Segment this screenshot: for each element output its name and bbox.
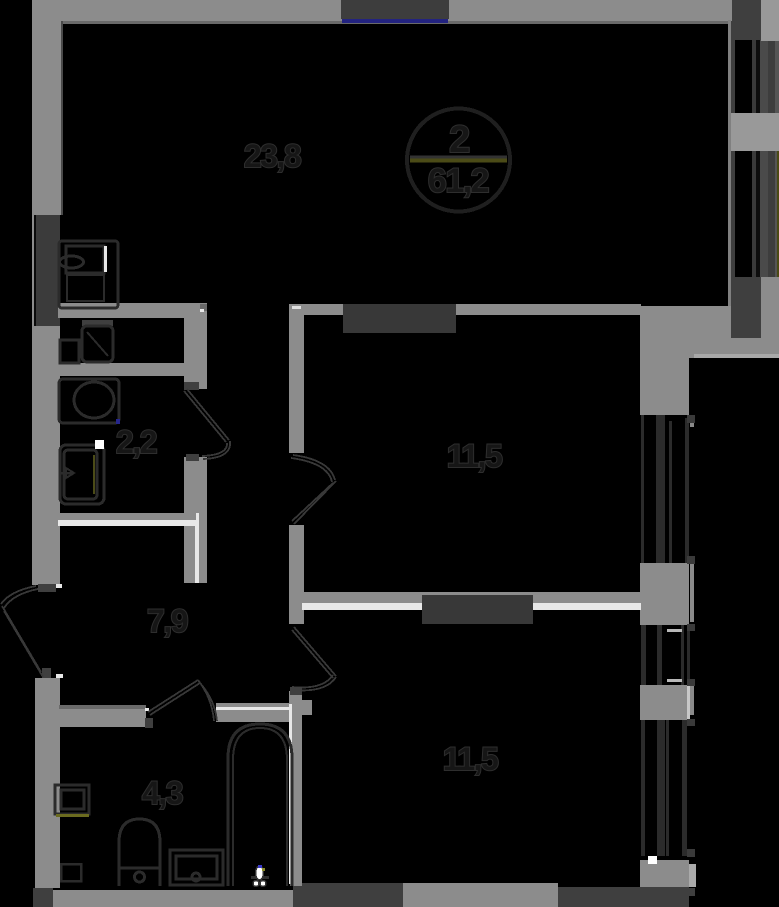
svg-text:61,2: 61,2	[428, 162, 489, 200]
svg-text:2: 2	[449, 119, 469, 161]
svg-text:4,3: 4,3	[142, 775, 183, 811]
svg-text:2,2: 2,2	[116, 424, 157, 460]
svg-text:7,9: 7,9	[147, 603, 188, 639]
svg-text:23,8: 23,8	[244, 138, 301, 174]
svg-text:11,5: 11,5	[443, 741, 498, 777]
svg-text:11,5: 11,5	[447, 438, 502, 474]
